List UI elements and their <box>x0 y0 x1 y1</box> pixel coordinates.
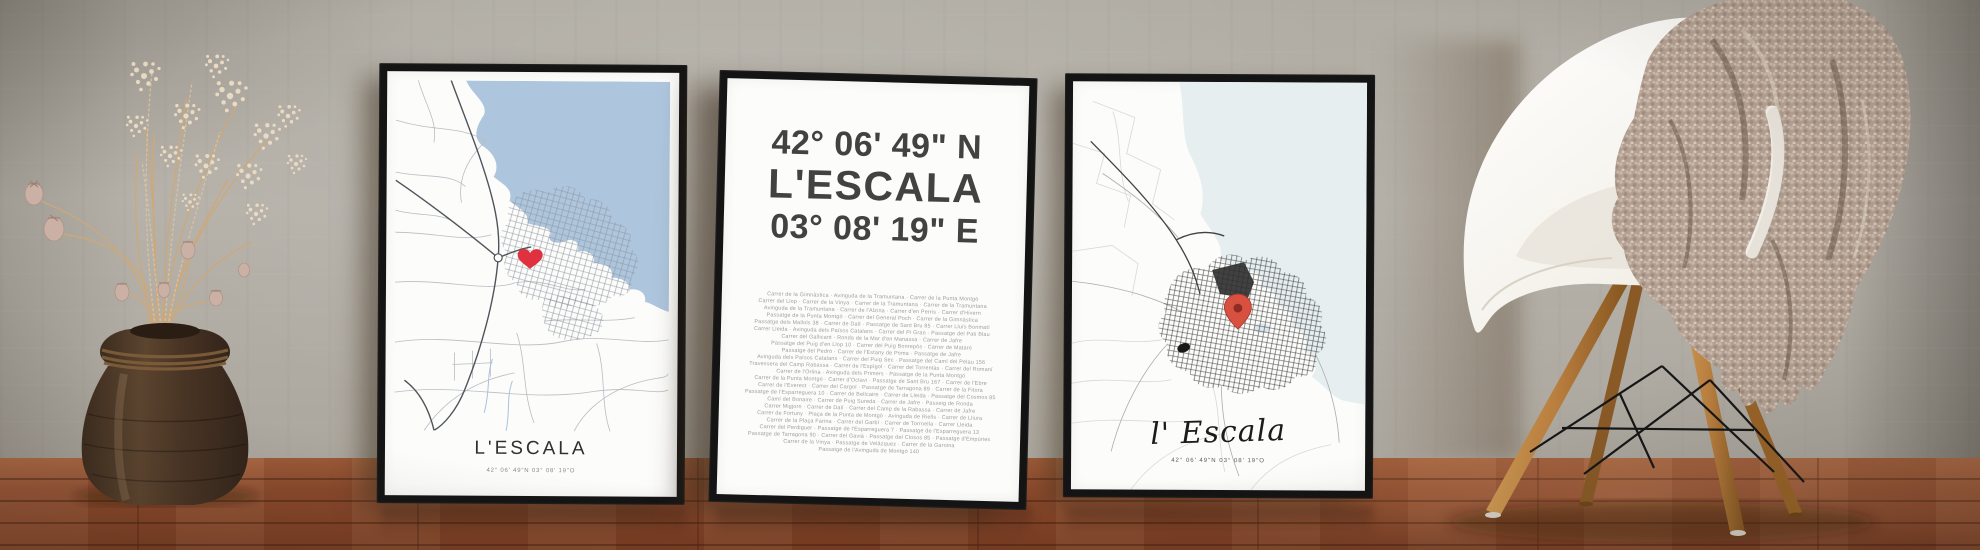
city-name-line: L'ESCALA <box>767 161 983 213</box>
rustic-wooden-vase <box>82 323 249 505</box>
map-poster-left: L'ESCALA 42° 06' 49"N 03° 08' 19"O <box>385 71 680 497</box>
roundabout <box>494 254 502 262</box>
stream-lines <box>484 359 512 431</box>
chair-floor-shadow <box>1447 502 1877 542</box>
poster-left-floor-reflection <box>380 506 686 536</box>
longitude-line: 03° 08' 19" E <box>770 207 980 251</box>
armchair-with-blanket <box>1412 0 1980 550</box>
left-map-graphic <box>394 80 670 432</box>
poster-frame-right: l' Escala 42° 06' 49"N 03° 08' 19"O <box>1063 73 1375 499</box>
street-names-block: Carrer de la Gimnàstica · Avinguda de la… <box>736 291 1006 459</box>
dried-flower-stems <box>38 99 266 332</box>
scene: L'ESCALA 42° 06' 49"N 03° 08' 19"O 42° 0… <box>0 0 1980 550</box>
poster-middle-floor-reflection <box>716 506 1032 536</box>
map-poster-right: l' Escala 42° 06' 49"N 03° 08' 19"O <box>1071 81 1367 491</box>
poster-title: L'ESCALA <box>385 437 677 461</box>
typography-poster: 42° 06' 49" N L'ESCALA 03° 08' 19" E Car… <box>717 78 1030 502</box>
vase-with-dried-flowers <box>4 14 334 514</box>
poster-right-floor-reflection <box>1066 506 1374 536</box>
poster-frame-middle: 42° 06' 49" N L'ESCALA 03° 08' 19" E Car… <box>708 70 1037 510</box>
poster-coordinates: 42° 06' 49"N 03° 08' 19"O <box>385 467 677 475</box>
knit-blanket <box>1612 0 1911 413</box>
poster-frame-left: L'ESCALA 42° 06' 49"N 03° 08' 19"O <box>377 63 688 505</box>
